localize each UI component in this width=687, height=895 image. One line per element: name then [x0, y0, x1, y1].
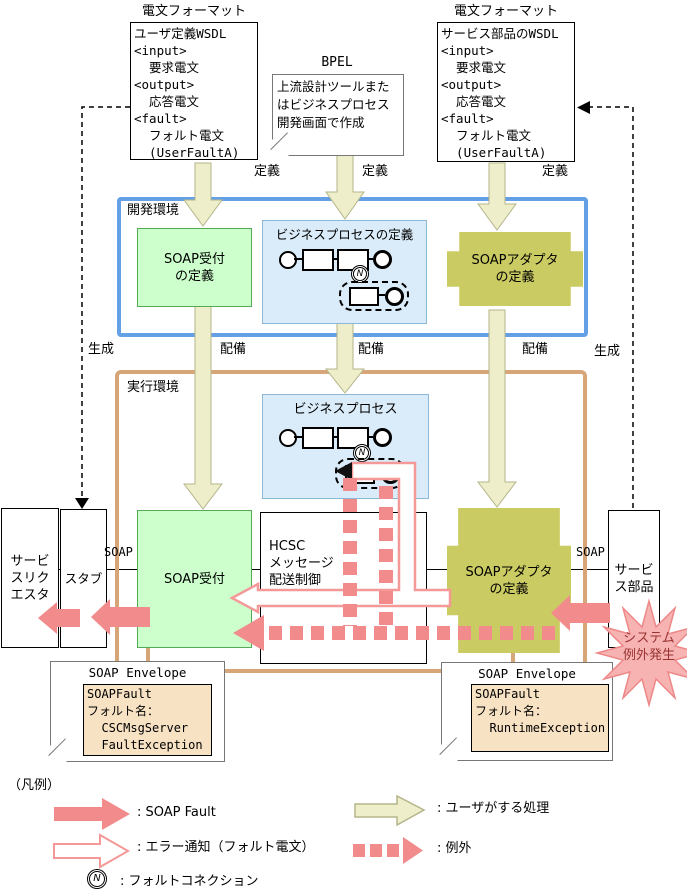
legend-exception-arrow: [353, 834, 427, 868]
legend-title: （凡例）: [8, 778, 60, 793]
legend-error-notice-label: : エラー通知（フォルト電文）: [137, 840, 315, 855]
right-wsdl-box: サービス部品のWSDL<input> 要求電文<output> 応答電文<fau…: [437, 22, 575, 162]
generate-line-right: [590, 107, 633, 508]
legend-soap-fault-arrow: [52, 796, 132, 832]
diagram-canvas: 電文フォーマット ユーザ定義WSDL<input> 要求電文<output> 応…: [0, 0, 687, 895]
bpmn-fault-handler: [339, 281, 409, 311]
bpmn-start-event: [279, 251, 297, 269]
note-fold: [50, 745, 67, 762]
fault-connection-icon: N: [353, 267, 367, 281]
right-format-label: 電文フォーマット: [437, 4, 575, 19]
bpmn-fault-handler: [335, 458, 405, 489]
deploy-label-left: 配備: [220, 342, 246, 357]
soap-adapter-exec-label: SOAPアダプタの定義: [447, 508, 571, 653]
envelope-left-note: SOAP Envelope SOAPFaultフォルト名： CSCMsgServ…: [50, 661, 225, 762]
service-requester-label: サービスリクエスタ: [2, 509, 58, 647]
soap-reception-label: SOAP受付: [138, 511, 251, 647]
legend-user-process-label: : ユーザがする処理: [437, 801, 549, 816]
generate-label-right: 生成: [594, 344, 620, 359]
bp-def-title: ビジネスプロセスの定義: [263, 227, 426, 242]
define-arrow-middle: [326, 155, 364, 219]
stub-box: スタブ: [60, 509, 107, 648]
bpmn-task-1: [302, 249, 334, 271]
legend-user-process-arrow: [353, 794, 427, 828]
bpmn-fault-end-event: [381, 465, 400, 484]
envelope-right-title: SOAP Envelope: [442, 663, 612, 681]
legend-fault-connection-icon: N: [89, 871, 105, 887]
envelope-right-note: SOAP Envelope SOAPFaultフォルト名： RuntimeExc…: [441, 662, 613, 761]
deploy-label-right: 配備: [522, 342, 548, 357]
generate-arrowhead-left: [75, 498, 89, 509]
bp-exec-title: ビジネスプロセス: [263, 402, 428, 417]
soap-reception-box: SOAP受付: [137, 510, 252, 648]
deploy-arrow-middle: [326, 322, 364, 393]
define-label-left: 定義: [254, 164, 280, 179]
bpel-note-text: 上流設計ツールまたはビジネスプロセス開発画面で作成: [273, 75, 403, 132]
soap-label-right: SOAP: [576, 545, 605, 559]
hcsc-label: HCSCメッセージ配送制御: [261, 513, 426, 589]
bpmn-flow-line: [294, 258, 302, 260]
bp-exec-box: ビジネスプロセス N: [262, 394, 429, 499]
deploy-arrow-right: [478, 310, 516, 507]
deploy-arrow-left: [184, 305, 222, 509]
hcsc-box: HCSCメッセージ配送制御: [260, 512, 427, 664]
bpmn-fault-task: [349, 287, 379, 306]
bpmn-task-1: [302, 427, 334, 449]
envelope-left-fault-box: SOAPFaultフォルト名： CSCMsgServer FaultExcept…: [83, 684, 212, 756]
service-part-label: サービス部品: [609, 511, 659, 647]
legend-error-notice-arrow: [52, 832, 132, 870]
bpel-note: 上流設計ツールまたはビジネスプロセス開発画面で作成: [272, 74, 404, 156]
define-arrow-right: [478, 163, 516, 230]
envelope-left-title: SOAP Envelope: [51, 662, 224, 680]
bp-def-box: ビジネスプロセスの定義 N: [262, 220, 427, 324]
exec-env-title: 実行環境: [127, 380, 179, 395]
dev-env-title: 開発環境: [127, 203, 179, 218]
bpmn-start-event: [279, 429, 297, 447]
left-format-label: 電文フォーマット: [130, 4, 258, 19]
define-label-right: 定義: [542, 164, 568, 179]
soap-label-left: SOAP: [104, 545, 133, 559]
soap-adapter-def-label: SOAPアダプタの定義: [447, 232, 583, 306]
soap-reception-def-box: SOAP受付の定義: [137, 228, 252, 307]
system-exception-label: システム例外発生: [606, 630, 687, 664]
service-requester-box: サービスリクエスタ: [1, 508, 59, 648]
deploy-label-middle: 配備: [358, 342, 384, 357]
legend-exception-label: : 例外: [437, 841, 472, 856]
define-arrow-left: [184, 163, 222, 226]
left-wsdl-box: ユーザ定義WSDL<input> 要求電文<output> 応答電文<fault…: [130, 22, 258, 160]
note-fold: [441, 744, 458, 761]
note-fold: [272, 139, 289, 156]
bpmn-end-event: [373, 250, 392, 269]
bpmn-flow-line: [377, 294, 385, 296]
soap-adapter-def-shape: SOAPアダプタの定義: [447, 232, 583, 306]
bpmn-end-event: [373, 428, 392, 447]
generate-label-left: 生成: [88, 342, 114, 357]
envelope-right-fault-box: SOAPFaultフォルト名： RuntimeException: [471, 684, 609, 752]
service-part-box: サービス部品: [608, 510, 660, 648]
soap-adapter-exec-shape: SOAPアダプタの定義: [447, 508, 571, 653]
legend-soap-fault-label: : SOAP Fault: [137, 805, 216, 820]
bpmn-flow-line: [294, 436, 302, 438]
generate-arrowhead-right: [577, 101, 590, 114]
define-label-middle: 定義: [362, 164, 388, 179]
legend-fault-connection-label: : フォルトコネクション: [120, 874, 259, 889]
generate-line-left: [82, 107, 130, 500]
bpel-label: BPEL: [272, 55, 402, 70]
soap-reception-def-label: SOAP受付の定義: [138, 229, 251, 306]
stub-label: スタブ: [61, 510, 106, 647]
bpmn-fault-end-event: [385, 287, 404, 306]
bpmn-fault-task: [345, 465, 375, 484]
